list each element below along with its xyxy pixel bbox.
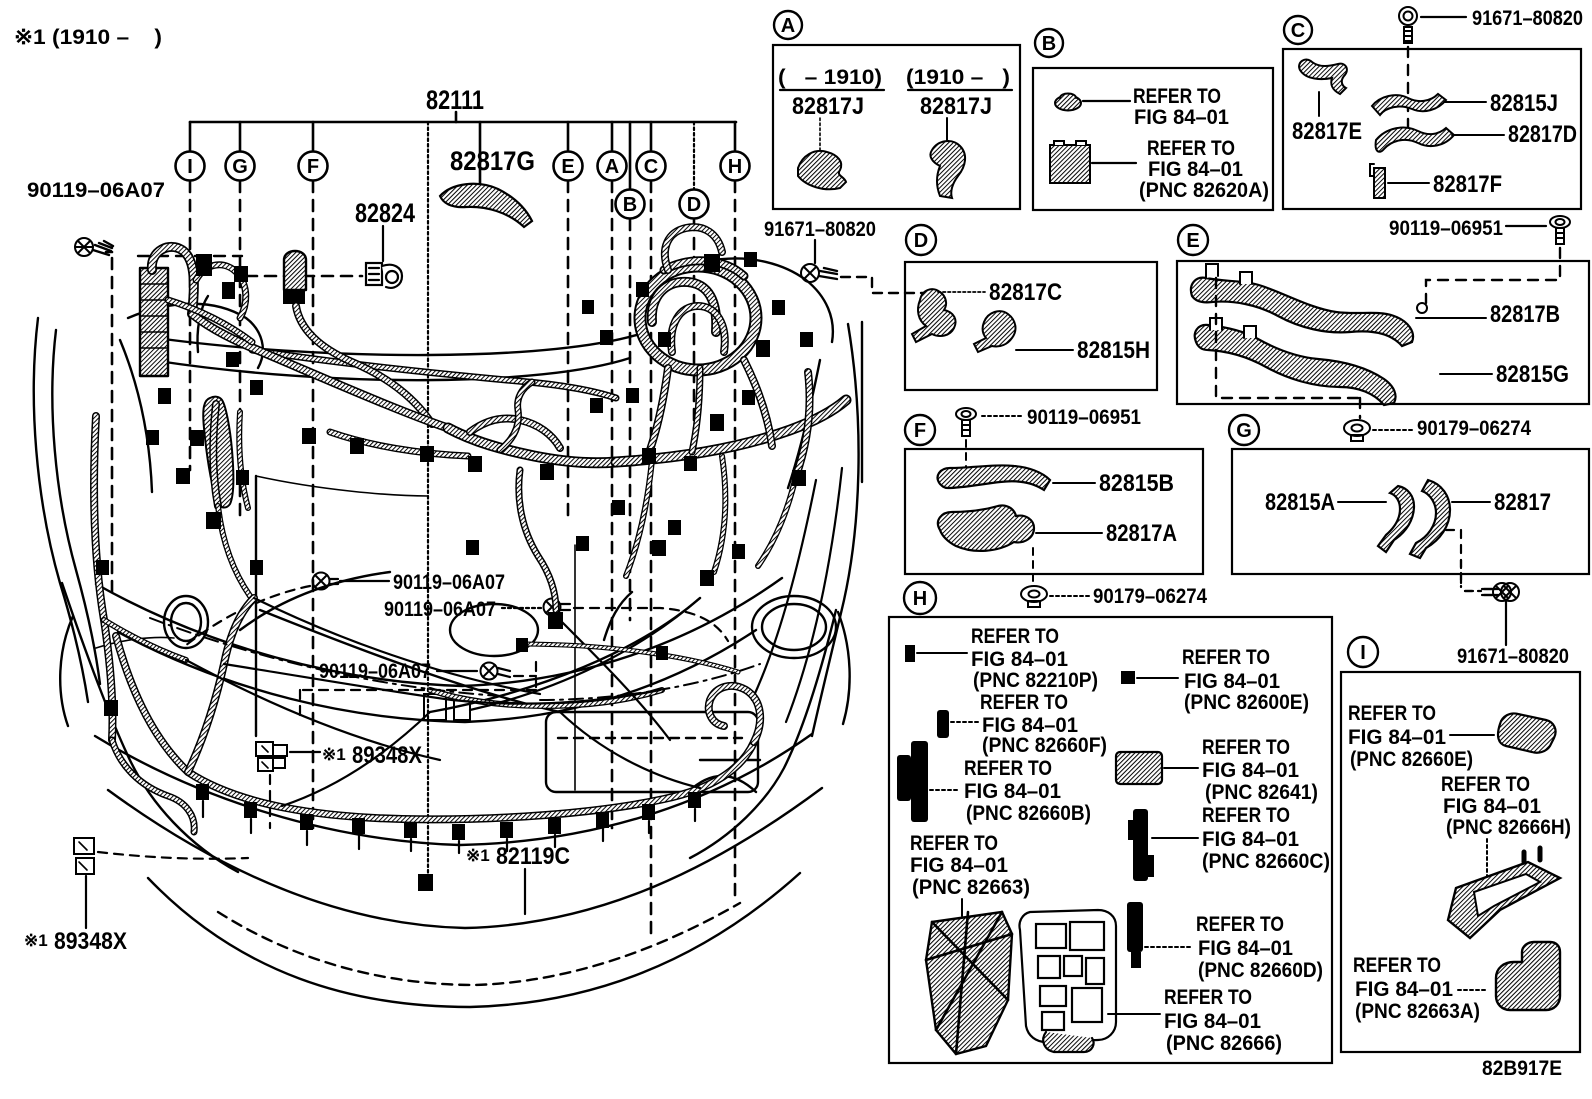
svg-text:FIG 84–01: FIG 84–01 (1355, 978, 1453, 1001)
svg-text:REFER TO: REFER TO (1202, 804, 1290, 827)
svg-text:REFER TO: REFER TO (1441, 773, 1530, 796)
svg-text:82817A: 82817A (1106, 520, 1177, 547)
svg-text:( – 1910): ( – 1910) (778, 66, 882, 89)
svg-text:82824: 82824 (355, 198, 415, 228)
svg-text:FIG 84–01: FIG 84–01 (964, 780, 1061, 803)
svg-text:H: H (913, 588, 927, 610)
svg-text:82817B: 82817B (1490, 301, 1560, 328)
svg-text:A: A (605, 156, 619, 178)
svg-text:FIG 84–01: FIG 84–01 (1198, 937, 1293, 960)
svg-text:C: C (1291, 20, 1305, 42)
svg-text:F: F (307, 156, 319, 178)
svg-text:REFER TO: REFER TO (1353, 954, 1441, 977)
svg-text:FIG 84–01: FIG 84–01 (1202, 828, 1299, 851)
svg-text:(PNC 82210P): (PNC 82210P) (973, 669, 1098, 692)
svg-text:FIG 84–01: FIG 84–01 (1348, 726, 1446, 749)
svg-text:(PNC 82663A): (PNC 82663A) (1355, 1000, 1480, 1023)
svg-text:G: G (232, 156, 248, 178)
svg-text:G: G (1236, 420, 1252, 442)
svg-text:82815G: 82815G (1496, 361, 1569, 388)
svg-text:90179–06274: 90179–06274 (1093, 585, 1207, 608)
svg-text:(PNC 82600E): (PNC 82600E) (1184, 691, 1309, 714)
svg-text:REFER TO: REFER TO (910, 832, 998, 855)
svg-text:82817C: 82817C (989, 279, 1062, 306)
svg-text:F: F (914, 420, 926, 442)
svg-text:(PNC 82620A): (PNC 82620A) (1139, 179, 1269, 202)
svg-text:90119–06A07: 90119–06A07 (27, 179, 165, 202)
svg-text:※1: ※1 (466, 846, 490, 865)
svg-text:(PNC 82641): (PNC 82641) (1205, 781, 1318, 804)
svg-text:I: I (187, 156, 193, 178)
svg-text:FIG 84–01: FIG 84–01 (971, 648, 1068, 671)
svg-text:82817E: 82817E (1292, 118, 1362, 145)
svg-text:82B917E: 82B917E (1482, 1057, 1562, 1080)
svg-text:82817J: 82817J (920, 93, 992, 120)
svg-text:I: I (1360, 642, 1366, 664)
svg-text:B: B (1042, 33, 1056, 55)
svg-text:H: H (728, 156, 742, 178)
svg-text:※1 (1910 – ): ※1 (1910 – ) (14, 26, 162, 49)
svg-text:82111: 82111 (426, 85, 484, 115)
svg-text:(1910 – ): (1910 – ) (906, 66, 1010, 89)
svg-text:※1: ※1 (24, 931, 48, 950)
svg-text:82817G: 82817G (450, 146, 535, 176)
svg-text:FIG 84–01: FIG 84–01 (1202, 759, 1299, 782)
svg-text:90119–06951: 90119–06951 (1027, 406, 1141, 429)
svg-text:REFER TO: REFER TO (964, 757, 1052, 780)
svg-text:91671–80820: 91671–80820 (1457, 645, 1569, 668)
svg-text:※1: ※1 (322, 745, 346, 764)
svg-text:FIG 84–01: FIG 84–01 (1134, 106, 1229, 129)
svg-text:B: B (623, 194, 637, 216)
svg-text:(PNC 82666H): (PNC 82666H) (1446, 816, 1571, 839)
svg-text:REFER TO: REFER TO (1164, 986, 1252, 1009)
svg-text:82815H: 82815H (1077, 337, 1150, 364)
svg-text:82817D: 82817D (1508, 121, 1577, 148)
svg-text:82815B: 82815B (1099, 470, 1174, 497)
svg-text:D: D (914, 230, 928, 252)
svg-text:(PNC 82660D): (PNC 82660D) (1198, 959, 1323, 982)
svg-text:82817F: 82817F (1433, 171, 1502, 198)
svg-text:REFER TO: REFER TO (1196, 913, 1284, 936)
svg-text:82817: 82817 (1494, 489, 1551, 516)
svg-text:REFER TO: REFER TO (1133, 85, 1221, 108)
svg-text:(PNC 82660F): (PNC 82660F) (982, 734, 1107, 757)
svg-text:91671–80820: 91671–80820 (764, 218, 876, 241)
svg-text:REFER TO: REFER TO (1202, 736, 1290, 759)
svg-text:90179–06274: 90179–06274 (1417, 417, 1531, 440)
svg-text:82815A: 82815A (1265, 489, 1335, 516)
svg-text:(PNC 82660E): (PNC 82660E) (1350, 748, 1473, 771)
svg-text:FIG 84–01: FIG 84–01 (910, 854, 1008, 877)
svg-text:FIG 84–01: FIG 84–01 (1443, 795, 1541, 818)
svg-text:(PNC 82666): (PNC 82666) (1166, 1032, 1282, 1055)
svg-text:D: D (687, 194, 701, 216)
svg-text:FIG 84–01: FIG 84–01 (1184, 670, 1280, 693)
svg-text:90119–06A07: 90119–06A07 (393, 571, 505, 594)
svg-text:REFER TO: REFER TO (1147, 137, 1235, 160)
svg-text:E: E (561, 156, 574, 178)
svg-text:91671–80820: 91671–80820 (1472, 7, 1583, 30)
svg-text:REFER TO: REFER TO (980, 691, 1068, 714)
svg-text:(PNC 82660C): (PNC 82660C) (1202, 850, 1330, 873)
svg-text:REFER TO: REFER TO (1182, 646, 1270, 669)
svg-text:(PNC 82660B): (PNC 82660B) (966, 802, 1091, 825)
svg-text:89348X: 89348X (54, 928, 127, 955)
svg-text:90119–06951: 90119–06951 (1389, 217, 1503, 240)
svg-text:FIG 84–01: FIG 84–01 (1148, 158, 1243, 181)
svg-text:90119–06A07: 90119–06A07 (384, 598, 496, 621)
svg-text:REFER TO: REFER TO (971, 625, 1059, 648)
svg-text:(PNC 82663): (PNC 82663) (912, 876, 1030, 899)
svg-text:82815J: 82815J (1490, 90, 1558, 117)
svg-text:C: C (644, 156, 658, 178)
svg-text:REFER TO: REFER TO (1348, 702, 1436, 725)
svg-text:A: A (781, 15, 795, 37)
svg-text:82817J: 82817J (792, 93, 864, 120)
svg-text:FIG 84–01: FIG 84–01 (1164, 1010, 1261, 1033)
svg-text:E: E (1186, 230, 1199, 252)
